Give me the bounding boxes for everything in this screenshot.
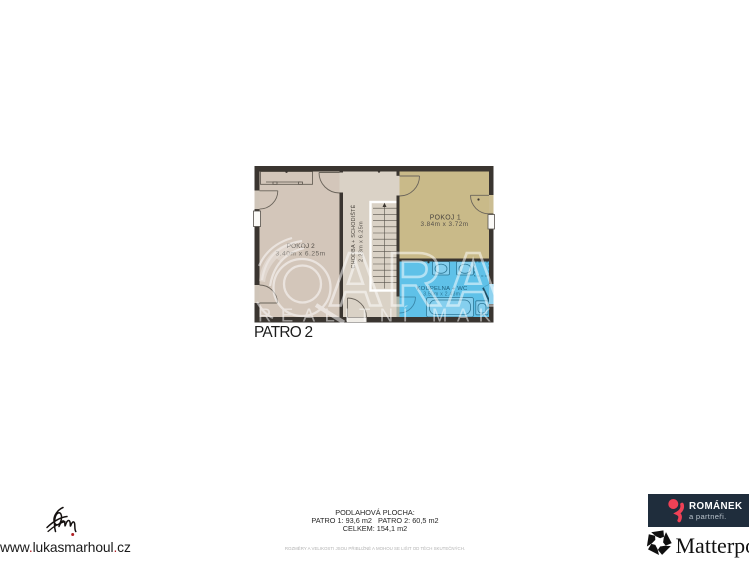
svg-text:3.84m x 3.72m: 3.84m x 3.72m [420,221,468,228]
svg-text:REALITNÍ MAKLÉŘ: REALITNÍ MAKLÉŘ [258,305,565,326]
